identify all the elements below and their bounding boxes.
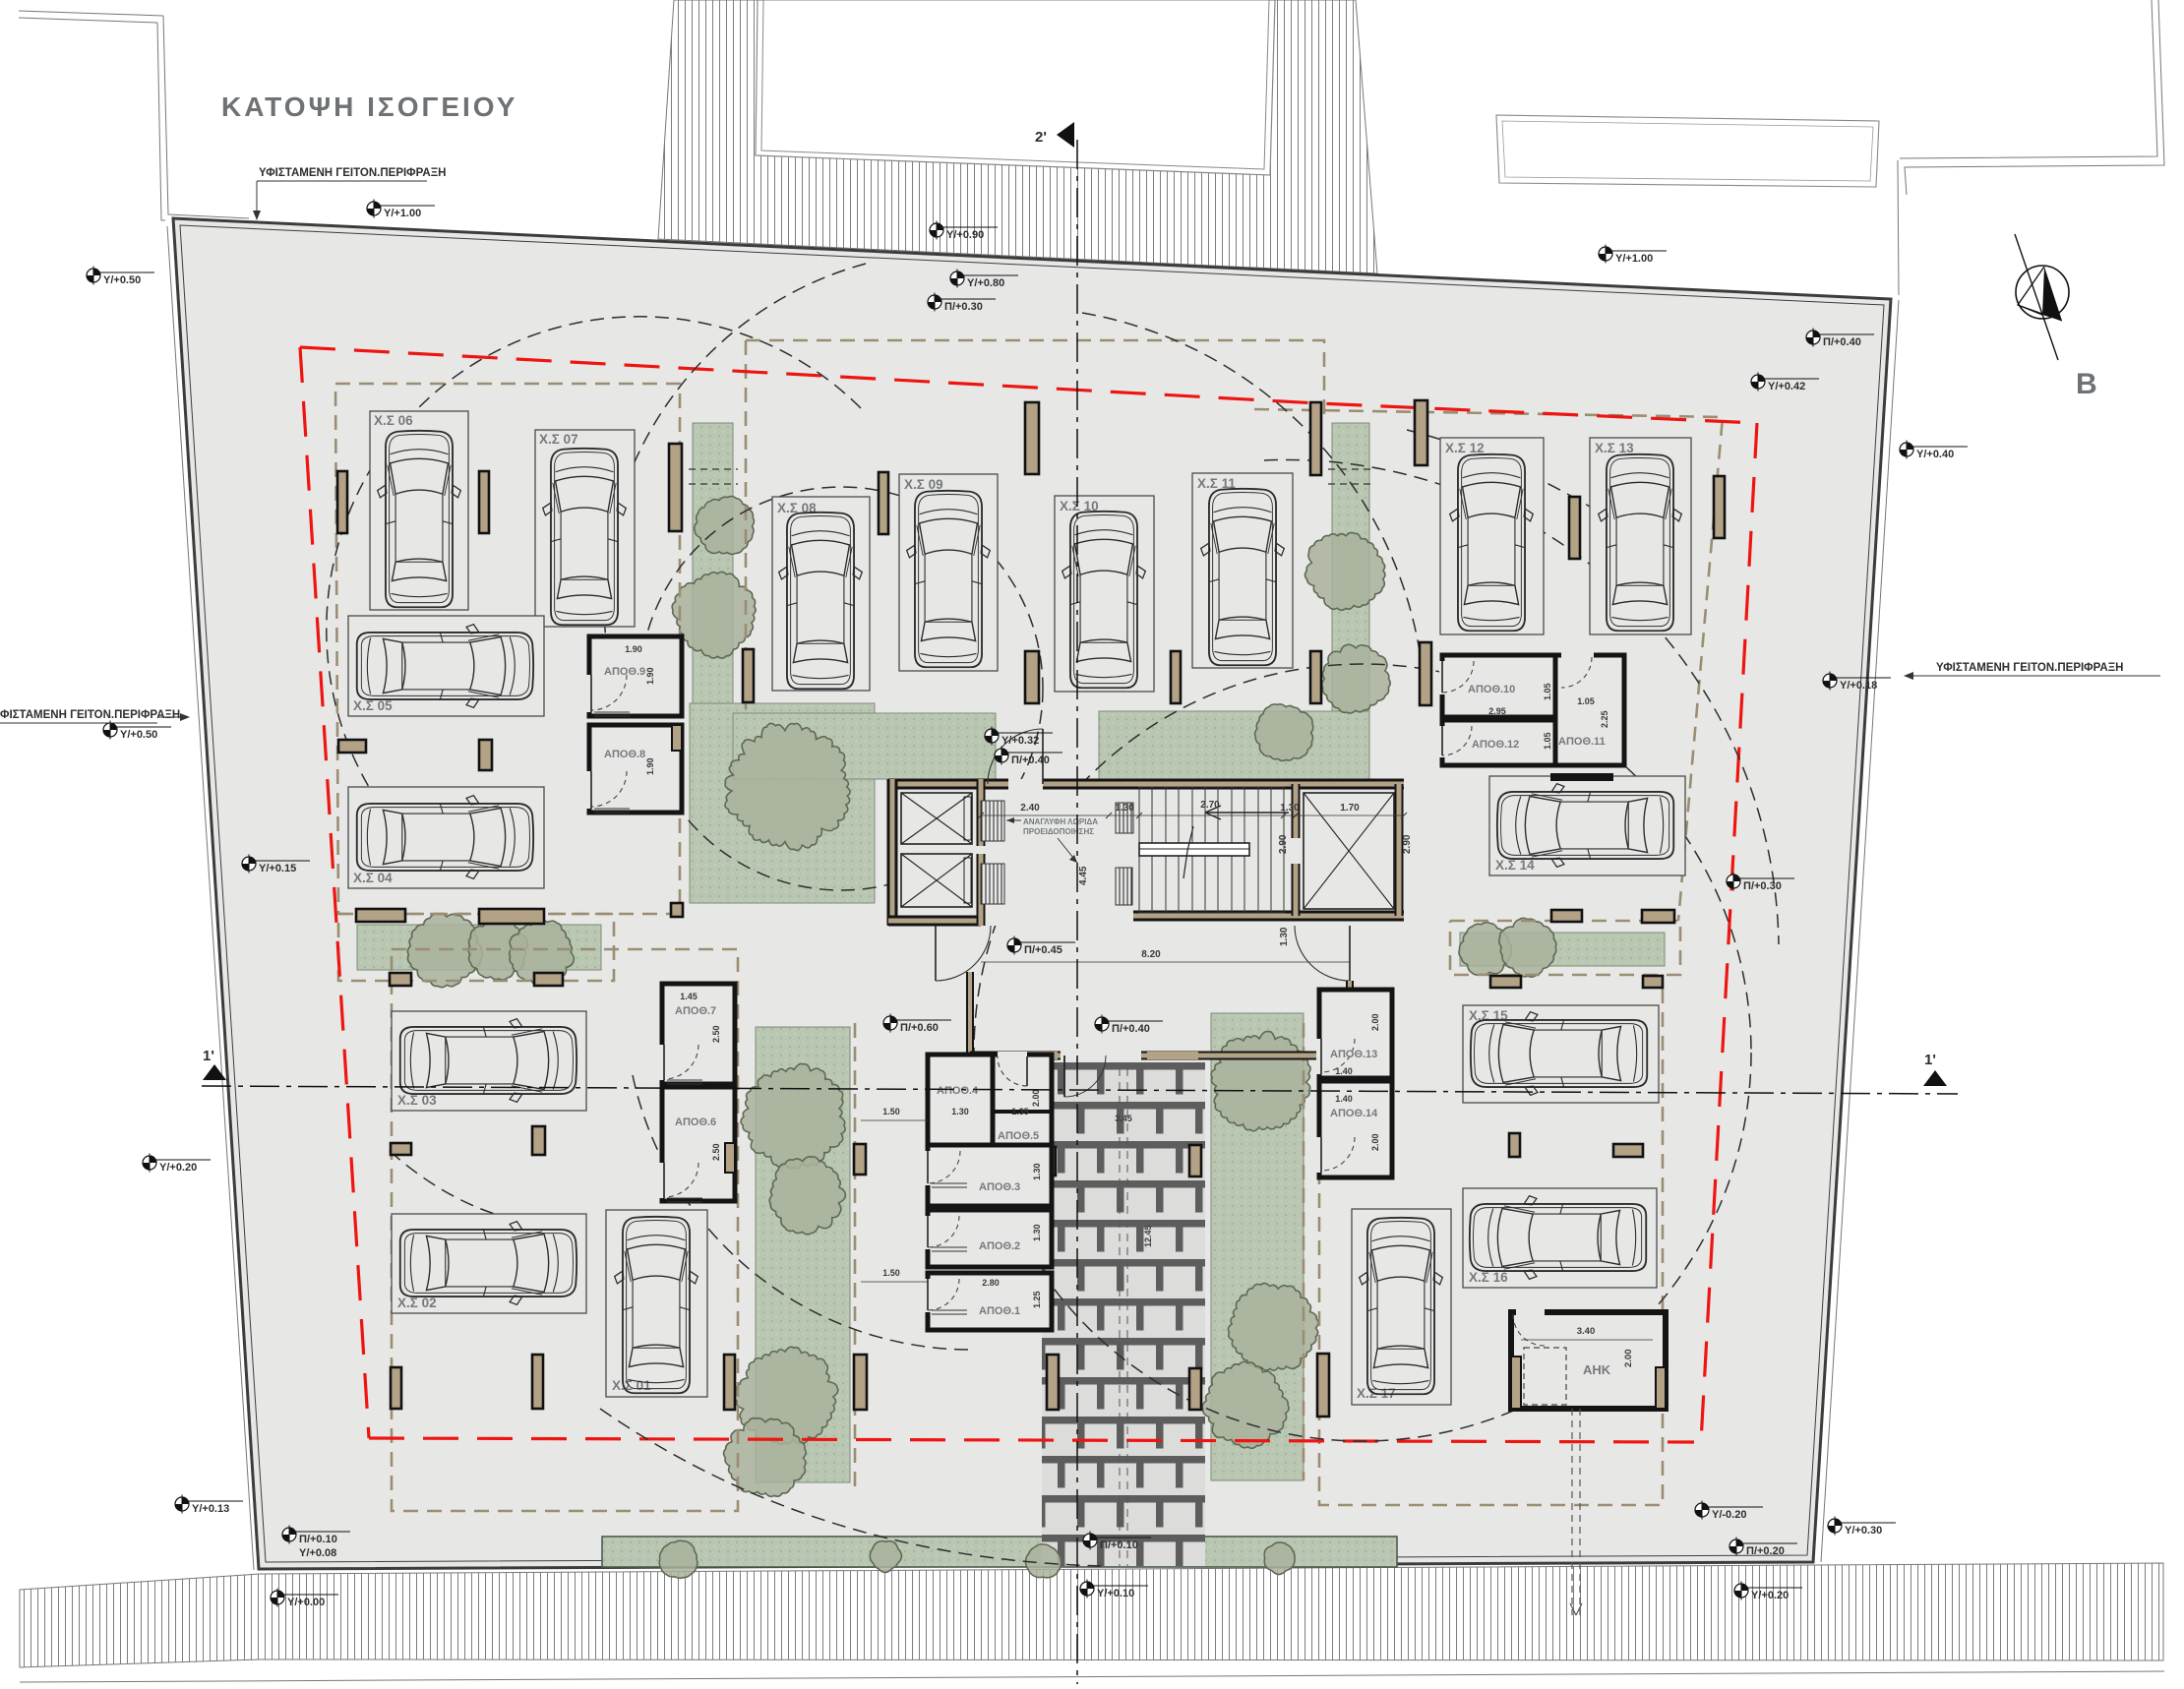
svg-text:1.40: 1.40: [1335, 1066, 1353, 1076]
svg-text:1.90: 1.90: [645, 757, 655, 775]
svg-text:ΑΗΚ: ΑΗΚ: [1583, 1362, 1611, 1377]
svg-text:B: B: [2076, 368, 2097, 400]
svg-text:ΚΑΤΟΨΗ ΙΣΟΓΕΙΟΥ: ΚΑΤΟΨΗ ΙΣΟΓΕΙΟΥ: [221, 91, 517, 122]
svg-text:2.50: 2.50: [711, 1025, 721, 1043]
svg-text:Y/-0.20: Y/-0.20: [1712, 1509, 1746, 1521]
svg-text:1.30: 1.30: [1032, 1224, 1042, 1241]
svg-text:X.Σ 12: X.Σ 12: [1445, 441, 1485, 455]
svg-text:2.25: 2.25: [1600, 710, 1609, 728]
svg-text:Y/+0.80: Y/+0.80: [967, 277, 1004, 289]
svg-text:Π/+0.40: Π/+0.40: [1112, 1023, 1150, 1035]
svg-text:ΑΠΟΘ.14: ΑΠΟΘ.14: [1330, 1108, 1378, 1119]
svg-text:Y/+1.00: Y/+1.00: [384, 208, 421, 219]
svg-text:ΑΠΟΘ.3: ΑΠΟΘ.3: [979, 1181, 1020, 1193]
svg-text:X.Σ 14: X.Σ 14: [1495, 858, 1535, 873]
svg-text:Π/+0.60: Π/+0.60: [900, 1022, 939, 1034]
svg-text:2.00: 2.00: [1623, 1350, 1634, 1368]
svg-text:ΑΠΟΘ.6: ΑΠΟΘ.6: [675, 1116, 716, 1128]
svg-text:2.95: 2.95: [1488, 706, 1506, 716]
svg-text:Π/+0.30: Π/+0.30: [1743, 880, 1782, 892]
svg-text:X.Σ 06: X.Σ 06: [374, 413, 413, 428]
svg-text:1.30: 1.30: [951, 1107, 969, 1116]
svg-text:2.00: 2.00: [1370, 1133, 1380, 1151]
svg-text:2.70: 2.70: [1200, 800, 1220, 811]
svg-text:1.30: 1.30: [1279, 927, 1290, 946]
svg-text:Y/+0.00: Y/+0.00: [287, 1597, 325, 1608]
svg-text:2.00: 2.00: [1031, 1089, 1041, 1107]
svg-text:12.45: 12.45: [1143, 1225, 1153, 1247]
svg-text:X.Σ 07: X.Σ 07: [539, 432, 578, 447]
svg-text:1': 1': [1924, 1052, 1936, 1068]
svg-text:Y/+0.32: Y/+0.32: [1001, 735, 1039, 747]
svg-text:Π/+0.45: Π/+0.45: [1024, 944, 1062, 956]
svg-text:Y/+0.42: Y/+0.42: [1768, 381, 1805, 392]
svg-text:1.25: 1.25: [1032, 1291, 1042, 1308]
svg-text:1.90: 1.90: [645, 667, 655, 685]
svg-text:X.Σ 16: X.Σ 16: [1469, 1270, 1508, 1285]
svg-text:1.05: 1.05: [1543, 732, 1552, 750]
svg-text:ΑΠΟΘ.8: ΑΠΟΘ.8: [604, 749, 645, 760]
svg-text:Y/+0.15: Y/+0.15: [259, 863, 296, 875]
svg-text:2': 2': [1035, 129, 1047, 146]
svg-text:Π/+0.40: Π/+0.40: [1011, 754, 1050, 766]
svg-text:ΑΠΟΘ.13: ΑΠΟΘ.13: [1330, 1049, 1377, 1060]
svg-text:Y/+0.40: Y/+0.40: [1916, 449, 1954, 460]
svg-text:ΑΠΟΘ.11: ΑΠΟΘ.11: [1558, 736, 1606, 748]
svg-text:X.Σ 03: X.Σ 03: [397, 1093, 437, 1108]
svg-text:ΥΦΙΣΤΑΜΕΝΗ ΓΕΙΤΟΝ.ΠΕΡΙΦΡΑΞΗ: ΥΦΙΣΤΑΜΕΝΗ ΓΕΙΤΟΝ.ΠΕΡΙΦΡΑΞΗ: [1936, 662, 2123, 674]
svg-text:ΑΠΟΘ.5: ΑΠΟΘ.5: [998, 1130, 1039, 1142]
svg-text:Y/+1.00: Y/+1.00: [1615, 253, 1653, 265]
svg-text:8.20: 8.20: [1141, 949, 1161, 960]
svg-text:ΑΠΟΘ.10: ΑΠΟΘ.10: [1468, 684, 1515, 695]
svg-text:Π/+0.40: Π/+0.40: [1823, 336, 1861, 348]
svg-text:Y/+0.30: Y/+0.30: [1845, 1525, 1882, 1537]
svg-text:Y/+0.10: Y/+0.10: [1097, 1588, 1134, 1599]
svg-text:Y/+0.18: Y/+0.18: [1840, 680, 1877, 692]
svg-text:ΑΠΟΘ.2: ΑΠΟΘ.2: [979, 1240, 1020, 1252]
svg-text:ΦΙΣΤΑΜΕΝΗ ΓΕΙΤΟΝ.ΠΕΡΙΦΡΑΞΗ: ΦΙΣΤΑΜΕΝΗ ΓΕΙΤΟΝ.ΠΕΡΙΦΡΑΞΗ: [0, 709, 180, 721]
svg-text:ΥΦΙΣΤΑΜΕΝΗ ΓΕΙΤΟΝ.ΠΕΡΙΦΡΑΞΗ: ΥΦΙΣΤΑΜΕΝΗ ΓΕΙΤΟΝ.ΠΕΡΙΦΡΑΞΗ: [259, 167, 446, 179]
svg-text:1.30: 1.30: [1280, 803, 1300, 814]
svg-text:2.50: 2.50: [711, 1143, 721, 1161]
svg-text:Y/+0.90: Y/+0.90: [946, 229, 984, 241]
svg-text:2.90: 2.90: [1402, 834, 1413, 854]
svg-text:Π/+0.30: Π/+0.30: [944, 301, 983, 313]
svg-text:ΑΠΟΘ.4: ΑΠΟΘ.4: [937, 1085, 979, 1097]
svg-text:Y/+0.20: Y/+0.20: [1751, 1590, 1789, 1601]
svg-text:1.05: 1.05: [1577, 696, 1595, 706]
svg-text:ΑΠΟΘ.9: ΑΠΟΘ.9: [604, 666, 645, 678]
svg-text:ΑΠΟΘ.1: ΑΠΟΘ.1: [979, 1305, 1020, 1317]
svg-text:X.Σ 13: X.Σ 13: [1595, 441, 1634, 455]
svg-text:1.45: 1.45: [680, 992, 698, 1001]
svg-text:Π/+0.10: Π/+0.10: [1100, 1539, 1138, 1551]
svg-text:ΑΝΑΓΛΥΦΗ ΛΩΡΙΔΑ: ΑΝΑΓΛΥΦΗ ΛΩΡΙΔΑ: [1023, 817, 1098, 826]
svg-text:1.30: 1.30: [1032, 1163, 1042, 1180]
svg-text:2.00: 2.00: [1370, 1013, 1380, 1031]
svg-text:ΑΠΟΘ.7: ΑΠΟΘ.7: [675, 1005, 716, 1017]
svg-text:Y/+0.13: Y/+0.13: [192, 1503, 229, 1515]
svg-text:ΠΡΟΕΙΔΟΠΟΙΗΣΗΣ: ΠΡΟΕΙΔΟΠΟΙΗΣΗΣ: [1023, 827, 1094, 836]
svg-text:1.30: 1.30: [1115, 803, 1134, 814]
svg-text:Π/+0.10: Π/+0.10: [299, 1534, 337, 1545]
svg-text:2.90: 2.90: [1278, 834, 1289, 854]
svg-text:1.35: 1.35: [1011, 1107, 1029, 1116]
svg-text:2.80: 2.80: [982, 1278, 1000, 1288]
svg-text:Y/+0.20: Y/+0.20: [159, 1162, 197, 1174]
svg-text:ΑΠΟΘ.12: ΑΠΟΘ.12: [1472, 739, 1519, 751]
svg-text:2.40: 2.40: [1020, 803, 1040, 814]
svg-text:Y/+0.08: Y/+0.08: [299, 1547, 336, 1559]
svg-text:1.50: 1.50: [882, 1107, 900, 1116]
svg-text:1.90: 1.90: [625, 644, 642, 654]
svg-text:3.40: 3.40: [1577, 1326, 1596, 1337]
svg-text:X.Σ 02: X.Σ 02: [397, 1296, 437, 1310]
svg-text:X.Σ 04: X.Σ 04: [353, 871, 393, 885]
svg-text:4.45: 4.45: [1078, 866, 1089, 885]
svg-text:X.Σ 09: X.Σ 09: [904, 477, 943, 492]
svg-text:Y/+0.50: Y/+0.50: [120, 729, 157, 741]
svg-text:3.45: 3.45: [1115, 1114, 1132, 1123]
svg-text:X.Σ 05: X.Σ 05: [353, 698, 393, 713]
svg-text:1.40: 1.40: [1335, 1094, 1353, 1104]
svg-text:Π/+0.20: Π/+0.20: [1746, 1545, 1785, 1557]
svg-text:Y/+0.50: Y/+0.50: [103, 274, 141, 286]
svg-text:1': 1': [203, 1048, 214, 1064]
svg-text:1.70: 1.70: [1340, 803, 1360, 814]
svg-text:1.05: 1.05: [1543, 683, 1552, 700]
svg-text:1.50: 1.50: [882, 1268, 900, 1278]
